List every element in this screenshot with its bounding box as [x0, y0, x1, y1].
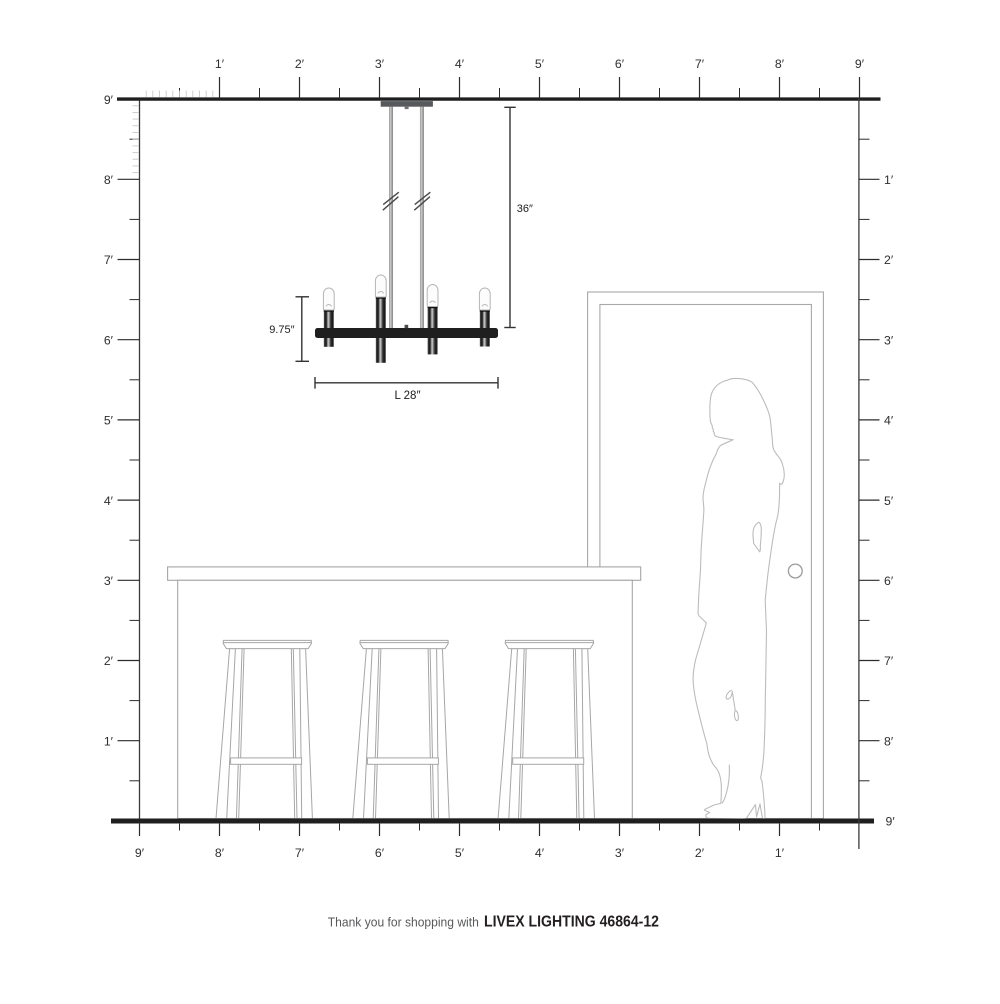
svg-text:1′: 1′ — [884, 173, 894, 187]
svg-text:6′: 6′ — [884, 574, 894, 588]
svg-text:2′: 2′ — [104, 654, 114, 668]
svg-text:7′: 7′ — [104, 253, 114, 267]
svg-text:2′: 2′ — [295, 57, 305, 71]
svg-text:4′: 4′ — [535, 846, 545, 860]
svg-text:1′: 1′ — [104, 734, 114, 748]
svg-text:3′: 3′ — [375, 57, 385, 71]
svg-text:2′: 2′ — [884, 253, 894, 267]
svg-text:9′: 9′ — [104, 93, 114, 107]
svg-text:LIVEX LIGHTING 46864-12: LIVEX LIGHTING 46864-12 — [484, 913, 659, 930]
svg-text:3′: 3′ — [884, 333, 894, 347]
svg-text:8′: 8′ — [104, 173, 114, 187]
svg-text:7′: 7′ — [884, 654, 894, 668]
svg-text:4′: 4′ — [455, 57, 465, 71]
svg-text:1′: 1′ — [215, 57, 225, 71]
svg-text:5′: 5′ — [104, 414, 114, 428]
svg-text:9′: 9′ — [135, 846, 145, 860]
svg-text:9′: 9′ — [855, 57, 865, 71]
svg-text:4′: 4′ — [884, 414, 894, 428]
svg-text:L 28″: L 28″ — [394, 390, 420, 402]
svg-text:36″: 36″ — [517, 203, 533, 215]
svg-text:4′: 4′ — [104, 494, 114, 508]
svg-text:3′: 3′ — [104, 574, 114, 588]
svg-text:6′: 6′ — [375, 846, 385, 860]
svg-text:7′: 7′ — [695, 57, 705, 71]
svg-text:8′: 8′ — [775, 57, 785, 71]
svg-text:8′: 8′ — [884, 734, 894, 748]
svg-text:9′: 9′ — [886, 815, 896, 829]
svg-text:6′: 6′ — [104, 333, 114, 347]
svg-text:5′: 5′ — [455, 846, 465, 860]
svg-text:8′: 8′ — [215, 846, 225, 860]
svg-text:5′: 5′ — [884, 494, 894, 508]
svg-text:1′: 1′ — [775, 846, 785, 860]
svg-text:3′: 3′ — [615, 846, 625, 860]
svg-text:2′: 2′ — [695, 846, 705, 860]
svg-text:7′: 7′ — [295, 846, 305, 860]
svg-text:9.75″: 9.75″ — [269, 324, 294, 336]
svg-text:Thank you for shopping with: Thank you for shopping with — [328, 914, 479, 929]
svg-text:6′: 6′ — [615, 57, 625, 71]
svg-text:5′: 5′ — [535, 57, 545, 71]
